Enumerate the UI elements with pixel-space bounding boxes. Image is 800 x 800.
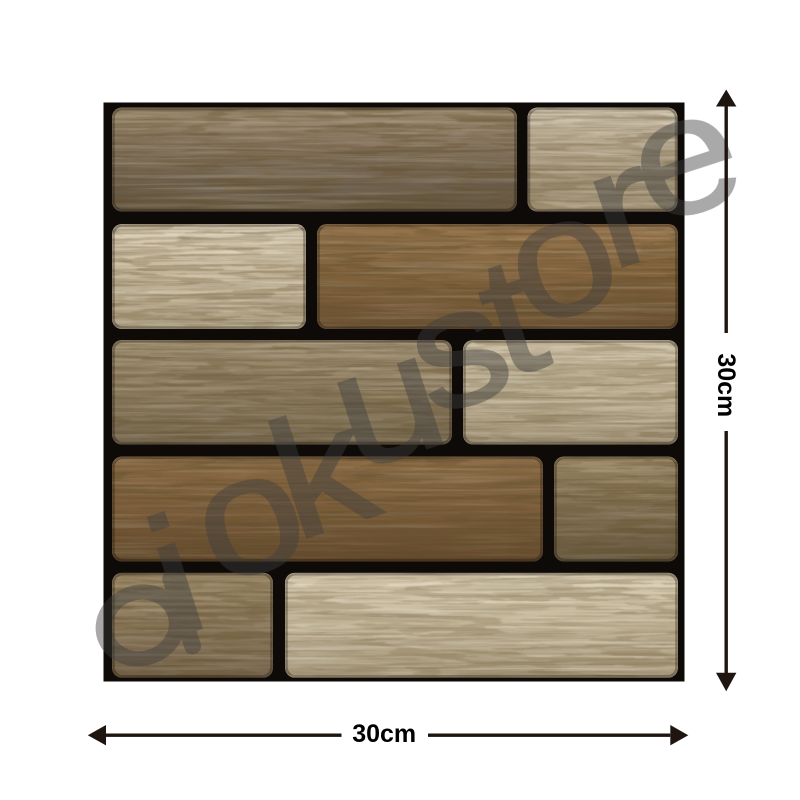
svg-text:30cm: 30cm	[352, 720, 416, 748]
svg-text:30cm: 30cm	[712, 353, 740, 417]
